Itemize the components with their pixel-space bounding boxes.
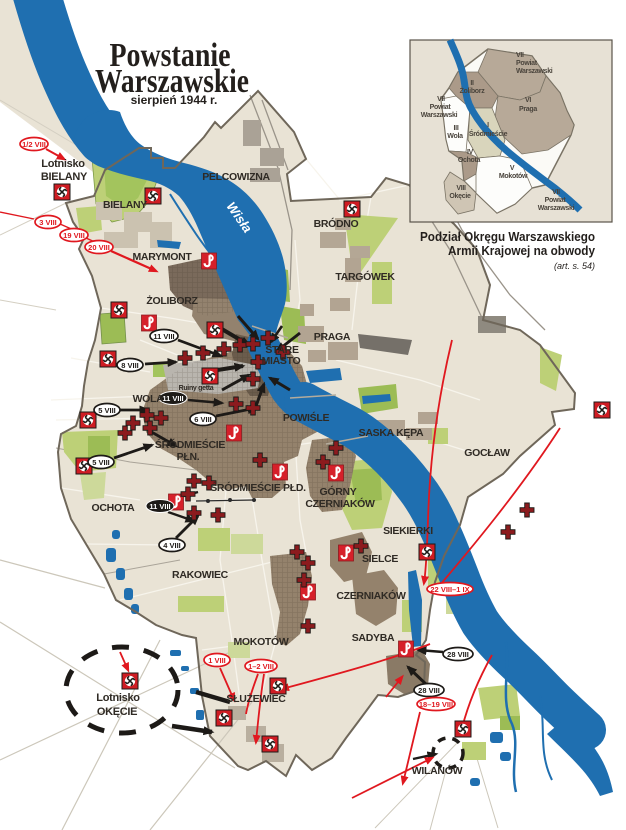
svg-text:PRAGA: PRAGA [314, 331, 351, 343]
svg-text:V: V [510, 165, 515, 172]
svg-text:28 VIII: 28 VIII [418, 686, 440, 695]
svg-text:Warszawski: Warszawski [538, 205, 575, 212]
svg-text:III: III [454, 125, 459, 132]
svg-text:MIASTO: MIASTO [262, 355, 301, 367]
svg-text:GÓRNY: GÓRNY [319, 485, 356, 498]
svg-text:SADYBA: SADYBA [352, 632, 395, 644]
svg-text:Warszawski: Warszawski [516, 68, 553, 75]
svg-text:BIELANY: BIELANY [103, 199, 147, 211]
svg-text:SIEKIERKI: SIEKIERKI [383, 525, 433, 537]
svg-text:VI: VI [525, 97, 531, 104]
svg-text:Okęcie: Okęcie [449, 193, 471, 200]
svg-text:WOLA: WOLA [133, 393, 165, 405]
svg-text:MARYMONT: MARYMONT [132, 251, 192, 263]
svg-text:5 VIII: 5 VIII [98, 406, 116, 415]
svg-text:ŚRÓDMIEŚCIE PŁD.: ŚRÓDMIEŚCIE PŁD. [210, 481, 306, 494]
svg-text:Żoliborz: Żoliborz [460, 87, 486, 95]
svg-text:11 VIII: 11 VIII [153, 332, 174, 341]
svg-text:8 VIII: 8 VIII [121, 361, 139, 370]
svg-text:MOKOTÓW: MOKOTÓW [233, 635, 288, 648]
svg-text:RAKOWIEC: RAKOWIEC [172, 569, 229, 581]
svg-text:11 VIII: 11 VIII [149, 502, 170, 511]
svg-text:Warszawski: Warszawski [421, 112, 458, 119]
svg-text:Praga: Praga [519, 106, 537, 113]
svg-text:5 VIII: 5 VIII [92, 458, 110, 467]
svg-text:Armii Krajowej na obwody: Armii Krajowej na obwody [448, 244, 595, 258]
svg-text:3 VIII: 3 VIII [39, 218, 57, 227]
svg-text:11 VIII: 11 VIII [162, 394, 183, 403]
svg-text:PŁN.: PŁN. [177, 451, 200, 463]
svg-text:1–2 VIII: 1–2 VIII [248, 662, 274, 671]
svg-text:SŁUŻEWIEC: SŁUŻEWIEC [226, 692, 286, 705]
svg-text:1/2 VIII: 1/2 VIII [22, 140, 46, 149]
svg-text:ŻOLIBORZ: ŻOLIBORZ [146, 294, 198, 307]
svg-text:22 VIII–1 IX: 22 VIII–1 IX [430, 585, 469, 594]
svg-text:ŚRÓDMIEŚCIE: ŚRÓDMIEŚCIE [155, 438, 226, 451]
svg-text:SASKA KĘPA: SASKA KĘPA [359, 427, 424, 439]
svg-text:OKĘCIE: OKĘCIE [97, 706, 137, 718]
svg-text:Ruiny getta: Ruiny getta [179, 385, 214, 392]
svg-text:VII: VII [552, 189, 560, 196]
svg-text:OCHOTA: OCHOTA [92, 502, 136, 514]
svg-text:Wola: Wola [447, 133, 463, 140]
svg-text:6 VIII: 6 VIII [194, 415, 212, 424]
svg-text:CZERNIAKÓW: CZERNIAKÓW [336, 589, 406, 602]
svg-text:Śródmieście: Śródmieście [469, 129, 508, 138]
svg-text:PELCOWIZNA: PELCOWIZNA [202, 171, 270, 183]
svg-text:4 VIII: 4 VIII [163, 541, 181, 550]
svg-text:19 VIII: 19 VIII [63, 231, 85, 240]
svg-text:20 VIII: 20 VIII [88, 243, 110, 252]
svg-text:Lotnisko: Lotnisko [41, 158, 85, 170]
svg-text:GOCŁAW: GOCŁAW [464, 447, 510, 459]
svg-text:BRÓDNO: BRÓDNO [314, 217, 359, 230]
svg-text:VIII: VIII [456, 185, 466, 192]
svg-text:TARGÓWEK: TARGÓWEK [335, 270, 395, 283]
svg-text:Powiat: Powiat [545, 197, 567, 204]
svg-text:28 VIII: 28 VIII [447, 650, 469, 659]
svg-text:Powiat: Powiat [430, 104, 452, 111]
svg-text:II: II [470, 80, 474, 87]
svg-text:VII: VII [437, 96, 445, 103]
svg-text:IV: IV [467, 149, 474, 156]
svg-text:WILANÓW: WILANÓW [412, 764, 463, 777]
svg-text:BIELANY: BIELANY [41, 171, 88, 183]
svg-text:sierpień 1944 r.: sierpień 1944 r. [131, 93, 218, 107]
svg-text:1 VIII: 1 VIII [208, 656, 226, 665]
svg-text:Powiat: Powiat [516, 60, 538, 67]
svg-text:Ochota: Ochota [458, 157, 481, 164]
svg-text:CZERNIAKÓW: CZERNIAKÓW [305, 497, 375, 510]
svg-text:(art. s. 54): (art. s. 54) [554, 261, 595, 271]
svg-text:Mokotów: Mokotów [499, 173, 528, 180]
svg-text:POWIŚLE: POWIŚLE [283, 411, 330, 424]
svg-text:Podział Okręgu Warszawskiego: Podział Okręgu Warszawskiego [420, 230, 595, 244]
svg-text:18–19 VIII: 18–19 VIII [419, 700, 453, 709]
svg-text:VII: VII [516, 52, 524, 59]
svg-text:Lotnisko: Lotnisko [96, 692, 140, 704]
svg-text:SIELCE: SIELCE [362, 553, 398, 565]
